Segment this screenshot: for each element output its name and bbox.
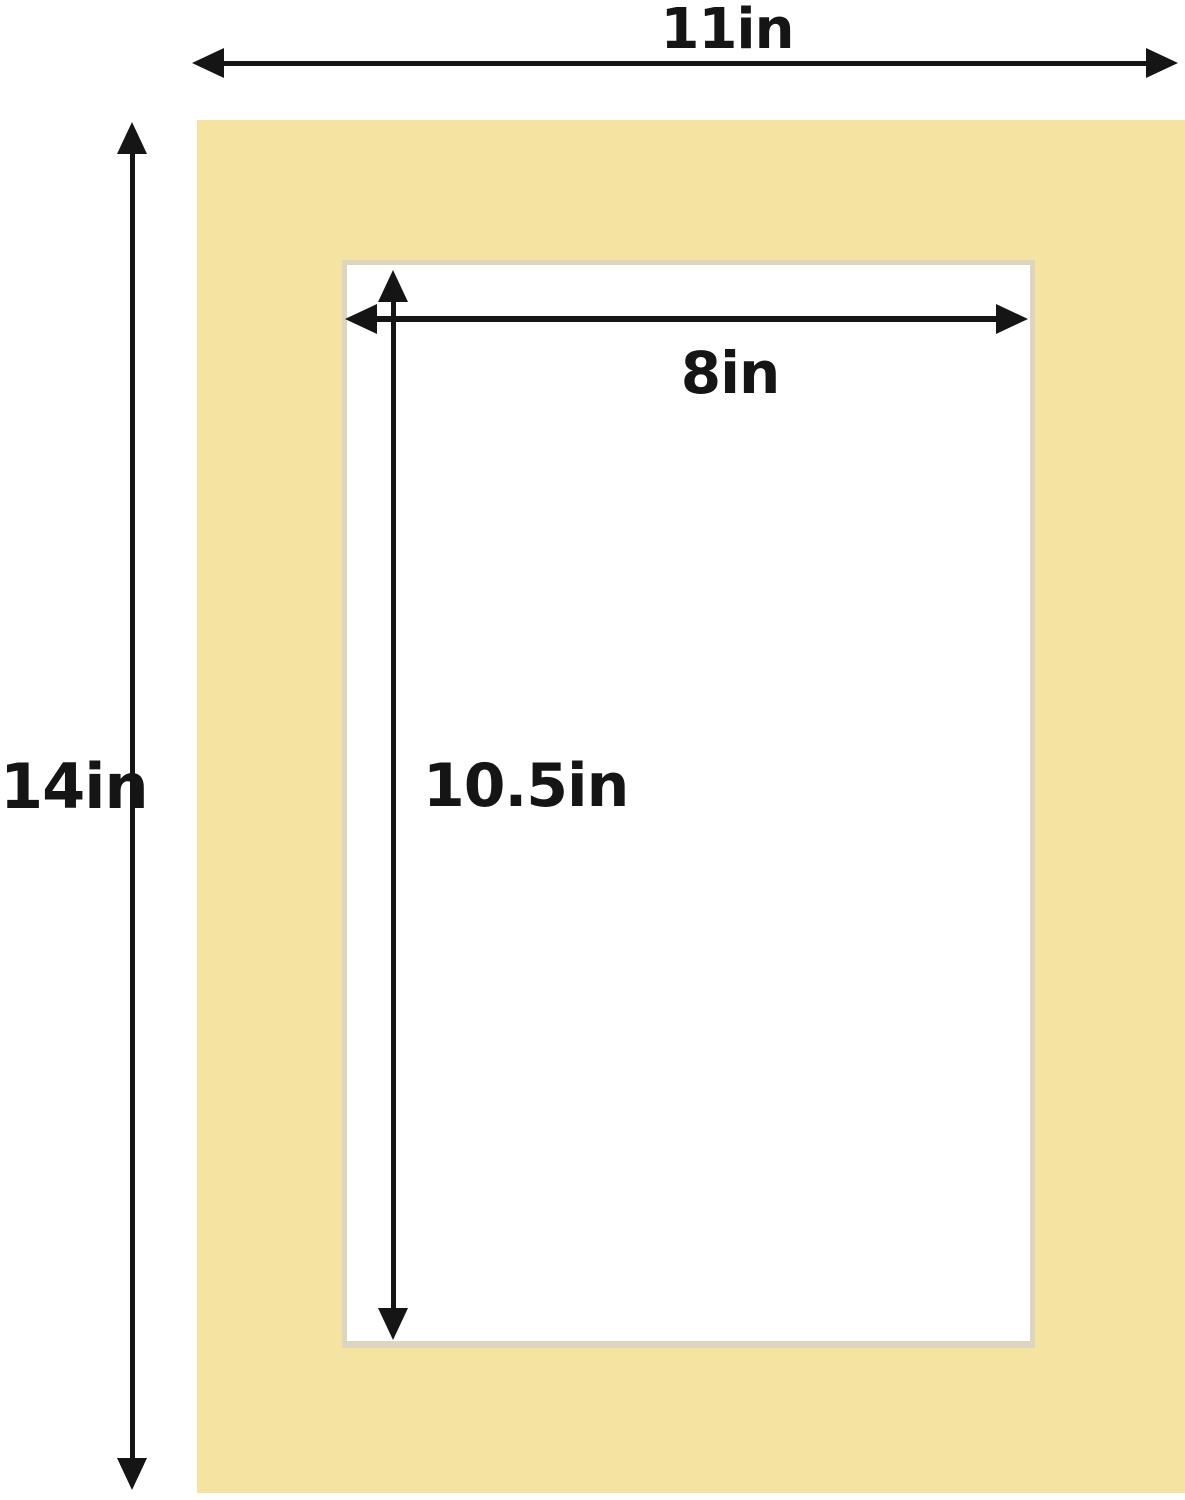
mat-dimension-diagram: 11in 14in 8in 10.5in	[0, 0, 1185, 1500]
arrowhead-up-icon	[117, 122, 147, 154]
outer-width-label: 11in	[642, 2, 812, 58]
arrowhead-right-icon	[1146, 48, 1178, 78]
opening-height-dimension-arrow	[378, 270, 408, 1340]
arrowhead-up-icon	[378, 270, 408, 302]
arrowhead-down-icon	[378, 1308, 408, 1340]
arrowhead-right-icon	[996, 304, 1028, 334]
arrow-shaft	[377, 316, 996, 322]
arrowhead-left-icon	[192, 48, 224, 78]
opening-width-label: 8in	[610, 344, 850, 402]
outer-height-label: 14in	[0, 756, 120, 818]
arrowhead-down-icon	[117, 1458, 147, 1490]
opening-height-label: 10.5in	[423, 756, 628, 816]
opening-width-dimension-arrow	[345, 304, 1028, 334]
arrow-shaft	[391, 302, 396, 1308]
arrowhead-left-icon	[345, 304, 377, 334]
